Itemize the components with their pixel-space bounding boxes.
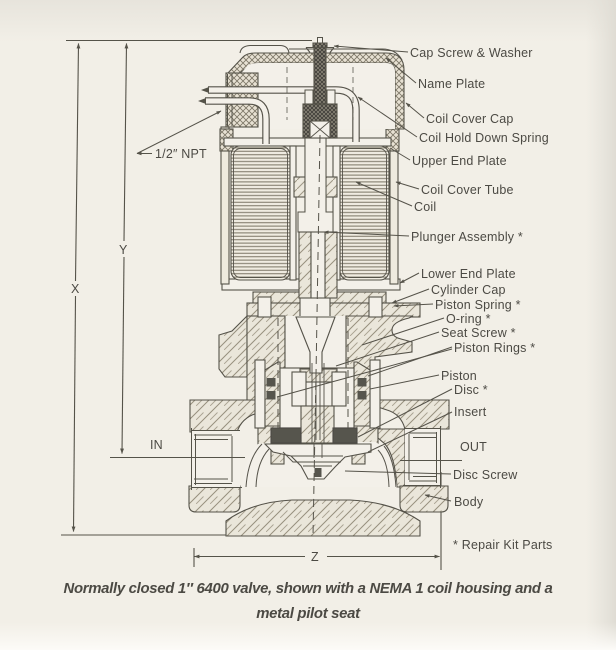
- svg-text:Seat Screw *: Seat Screw *: [441, 326, 516, 340]
- svg-text:OUT: OUT: [460, 440, 487, 454]
- svg-text:Piston Spring *: Piston Spring *: [435, 298, 521, 312]
- svg-text:Name Plate: Name Plate: [418, 77, 485, 91]
- svg-text:Disc Screw: Disc Screw: [453, 468, 518, 482]
- svg-text:Coil Cover Cap: Coil Cover Cap: [426, 112, 514, 126]
- svg-text:X: X: [71, 282, 80, 296]
- svg-text:Coil Hold Down Spring: Coil Hold Down Spring: [419, 131, 549, 145]
- svg-text:Upper End Plate: Upper End Plate: [412, 154, 507, 168]
- svg-text:Piston: Piston: [441, 369, 477, 383]
- svg-text:Y: Y: [119, 243, 128, 257]
- svg-text:Normally closed 1″ 6400 valve,: Normally closed 1″ 6400 valve, shown wit…: [64, 581, 553, 597]
- svg-text:Piston Rings *: Piston Rings *: [454, 341, 535, 355]
- svg-text:Coil Cover Tube: Coil Cover Tube: [421, 183, 514, 197]
- svg-text:metal pilot seat: metal pilot seat: [256, 606, 361, 622]
- svg-text:Z: Z: [311, 550, 319, 564]
- svg-text:Plunger Assembly *: Plunger Assembly *: [411, 230, 523, 244]
- svg-text:IN: IN: [150, 438, 163, 452]
- svg-text:1/2″ NPT: 1/2″ NPT: [155, 147, 207, 161]
- svg-text:* Repair Kit Parts: * Repair Kit Parts: [453, 538, 552, 552]
- svg-text:Lower End Plate: Lower End Plate: [421, 267, 516, 281]
- svg-text:Cap Screw & Washer: Cap Screw & Washer: [410, 46, 533, 60]
- svg-text:O-ring *: O-ring *: [446, 312, 491, 326]
- svg-text:Coil: Coil: [414, 200, 436, 214]
- svg-text:Cylinder Cap: Cylinder Cap: [431, 283, 506, 297]
- svg-text:Disc *: Disc *: [454, 383, 488, 397]
- svg-text:Insert: Insert: [454, 405, 487, 419]
- svg-text:Body: Body: [454, 495, 484, 509]
